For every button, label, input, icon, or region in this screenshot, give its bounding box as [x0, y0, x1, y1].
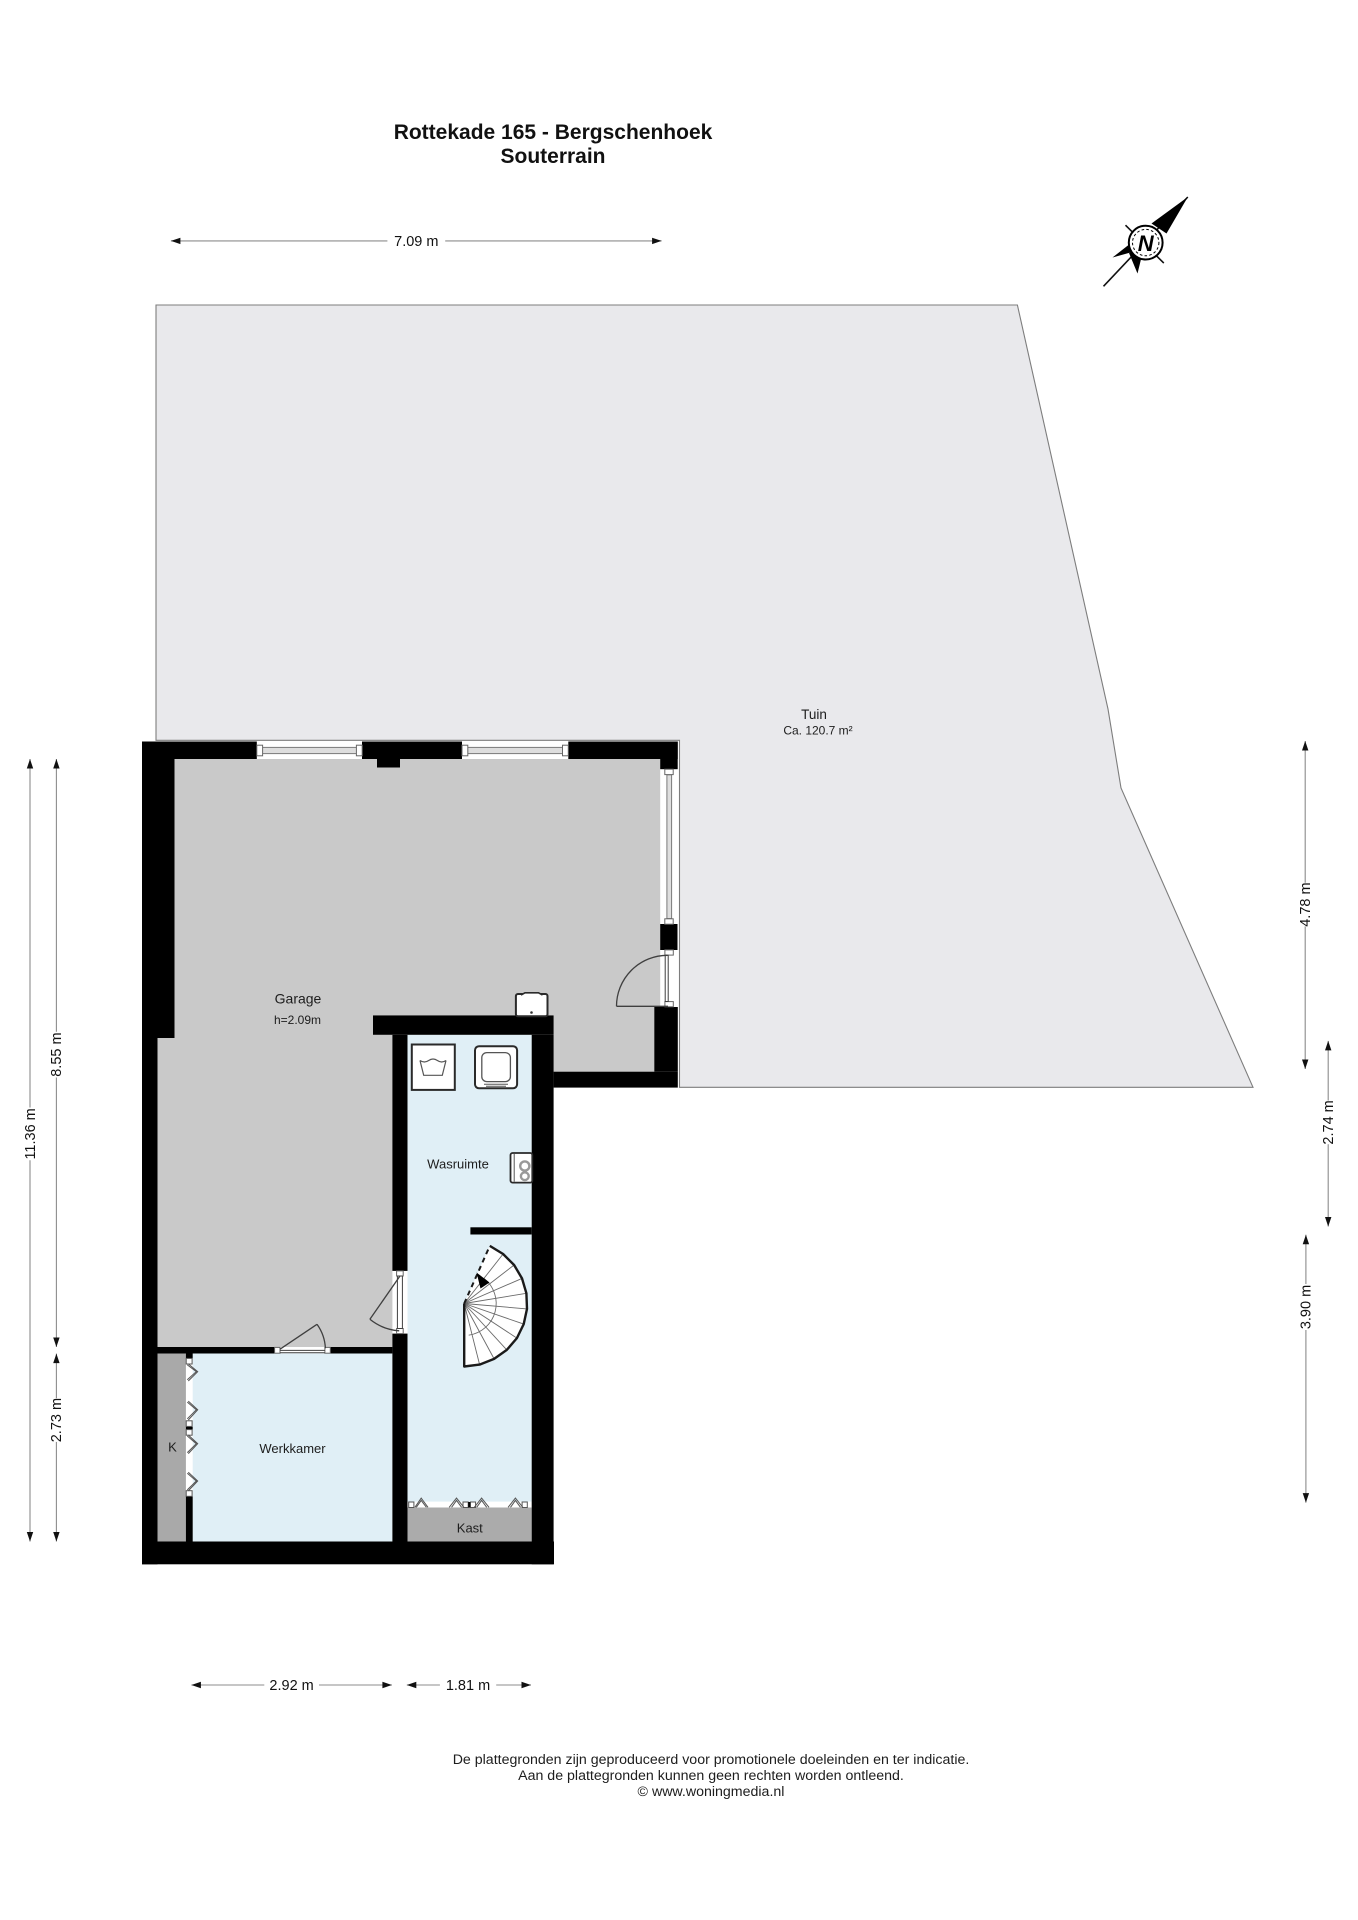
- svg-text:3.90 m: 3.90 m: [1299, 1285, 1315, 1329]
- svg-text:© www.woningmedia.nl: © www.woningmedia.nl: [638, 1784, 785, 1800]
- svg-text:K: K: [168, 1440, 177, 1455]
- svg-text:7.09 m: 7.09 m: [394, 234, 438, 250]
- svg-text:Ca. 120.7 m²: Ca. 120.7 m²: [783, 724, 852, 738]
- svg-text:De plattegronden zijn geproduc: De plattegronden zijn geproduceerd voor …: [453, 1752, 970, 1768]
- svg-text:Rottekade 165 - Bergschenhoek: Rottekade 165 - Bergschenhoek: [394, 121, 713, 144]
- svg-text:h=2.09m: h=2.09m: [274, 1013, 321, 1027]
- svg-text:Tuin: Tuin: [801, 707, 827, 722]
- svg-text:2.92 m: 2.92 m: [269, 1678, 313, 1694]
- svg-text:2.74 m: 2.74 m: [1321, 1100, 1337, 1144]
- svg-text:Garage: Garage: [275, 991, 322, 1007]
- svg-text:N: N: [1138, 231, 1155, 256]
- svg-text:11.36 m: 11.36 m: [23, 1108, 39, 1159]
- svg-text:4.78 m: 4.78 m: [1298, 882, 1314, 926]
- svg-text:8.55 m: 8.55 m: [49, 1032, 65, 1076]
- svg-text:1.81 m: 1.81 m: [446, 1678, 490, 1694]
- svg-text:2.73 m: 2.73 m: [49, 1398, 65, 1442]
- svg-text:Aan de plattegronden kunnen ge: Aan de plattegronden kunnen geen rechten…: [518, 1768, 904, 1784]
- svg-text:Souterrain: Souterrain: [500, 145, 605, 168]
- svg-text:Wasruimte: Wasruimte: [427, 1157, 489, 1172]
- svg-text:Kast: Kast: [457, 1521, 483, 1536]
- svg-text:Werkkamer: Werkkamer: [259, 1441, 326, 1456]
